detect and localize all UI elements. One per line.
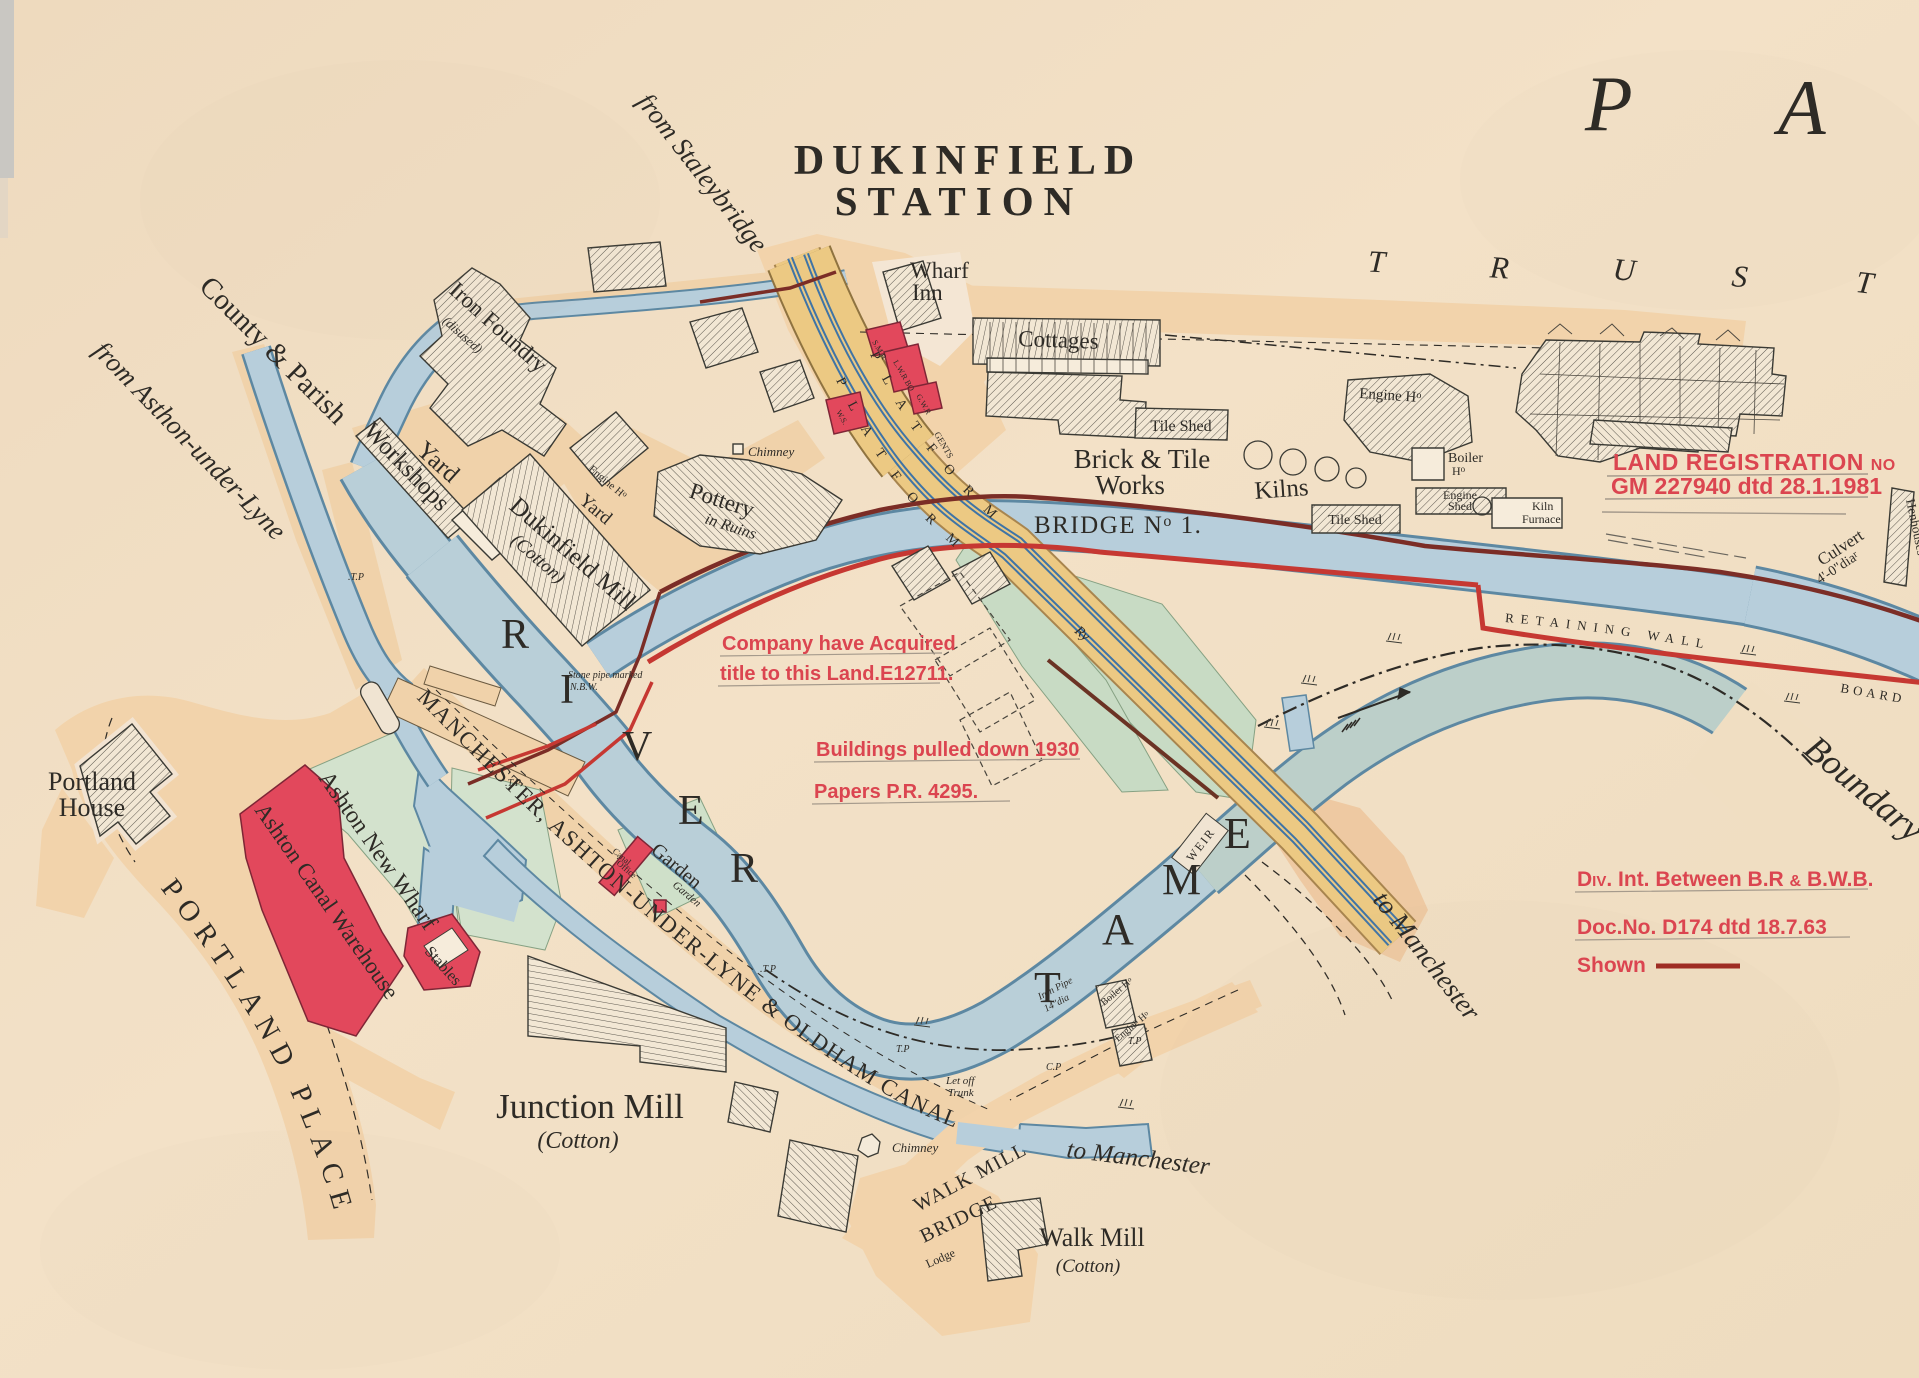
svg-text:title to this Land.E12711.: title to this Land.E12711. xyxy=(720,663,953,685)
svg-text:Kiln: Kiln xyxy=(1532,499,1553,513)
svg-text:T.P: T.P xyxy=(896,1044,909,1055)
svg-text:LAND REGISTRATION NO: LAND REGISTRATION NO xyxy=(1613,449,1896,475)
svg-text:T.P: T.P xyxy=(1128,1036,1141,1047)
svg-text:Walk Mill: Walk Mill xyxy=(1039,1223,1145,1252)
svg-text:GM 227940 dtd 28.1.1981: GM 227940 dtd 28.1.1981 xyxy=(1611,473,1882,499)
svg-text:.T.P: .T.P xyxy=(348,572,364,583)
svg-text:Portland: Portland xyxy=(48,767,136,796)
svg-text:BRIDGE No 1.: BRIDGE No 1. xyxy=(1034,512,1202,539)
svg-text:Chimney: Chimney xyxy=(748,444,794,459)
svg-text:.T.P: .T.P xyxy=(505,778,521,789)
svg-text:R: R xyxy=(730,846,758,892)
svg-text:Chimney: Chimney xyxy=(892,1140,938,1155)
svg-text:Cottages: Cottages xyxy=(1018,326,1099,354)
svg-text:Works: Works xyxy=(1095,470,1165,500)
svg-text:House: House xyxy=(59,793,125,822)
svg-text:Tile Shed: Tile Shed xyxy=(1328,513,1382,528)
svg-text:V: V xyxy=(622,724,652,770)
svg-text:Company have Acquired: Company have Acquired xyxy=(722,633,956,655)
svg-text:Buildings pulled down 1930: Buildings pulled down 1930 xyxy=(816,739,1079,761)
svg-text:(Cotton): (Cotton) xyxy=(1056,1256,1120,1277)
svg-text:DIV. Int. Between B.R & B.W.B.: DIV. Int. Between B.R & B.W.B. xyxy=(1577,868,1873,891)
svg-text:N.B.W.: N.B.W. xyxy=(569,682,598,693)
svg-text:Shown: Shown xyxy=(1577,954,1646,977)
svg-text:Shed: Shed xyxy=(1448,499,1472,513)
svg-text:Doc.No. D174 dtd 18.7.63: Doc.No. D174 dtd 18.7.63 xyxy=(1577,916,1827,939)
svg-text:Papers P.R. 4295.: Papers P.R. 4295. xyxy=(814,781,978,803)
svg-text:Tile Shed: Tile Shed xyxy=(1150,418,1211,435)
svg-text:R: R xyxy=(1488,249,1510,285)
svg-text:STATION: STATION xyxy=(835,178,1083,224)
svg-text:R: R xyxy=(501,612,529,658)
svg-text:A: A xyxy=(1773,64,1826,151)
svg-text:Kilns: Kilns xyxy=(1254,474,1310,505)
svg-text:(Cotton): (Cotton) xyxy=(537,1128,618,1154)
svg-text:Trunk: Trunk xyxy=(948,1087,975,1099)
svg-text:Furnace: Furnace xyxy=(1522,512,1561,526)
svg-text:C.P: C.P xyxy=(1046,1062,1061,1073)
svg-text:Stone pipe marked: Stone pipe marked xyxy=(568,670,643,681)
svg-text:P: P xyxy=(1584,60,1633,147)
svg-text:.T.P: .T.P xyxy=(760,964,776,975)
svg-text:Junction Mill: Junction Mill xyxy=(496,1087,684,1126)
svg-text:M: M xyxy=(1162,855,1201,904)
svg-text:A: A xyxy=(1102,905,1134,954)
svg-text:Inn: Inn xyxy=(912,280,943,305)
svg-text:E: E xyxy=(1224,809,1251,858)
svg-text:Let off: Let off xyxy=(945,1075,976,1087)
svg-text:E: E xyxy=(678,788,704,834)
